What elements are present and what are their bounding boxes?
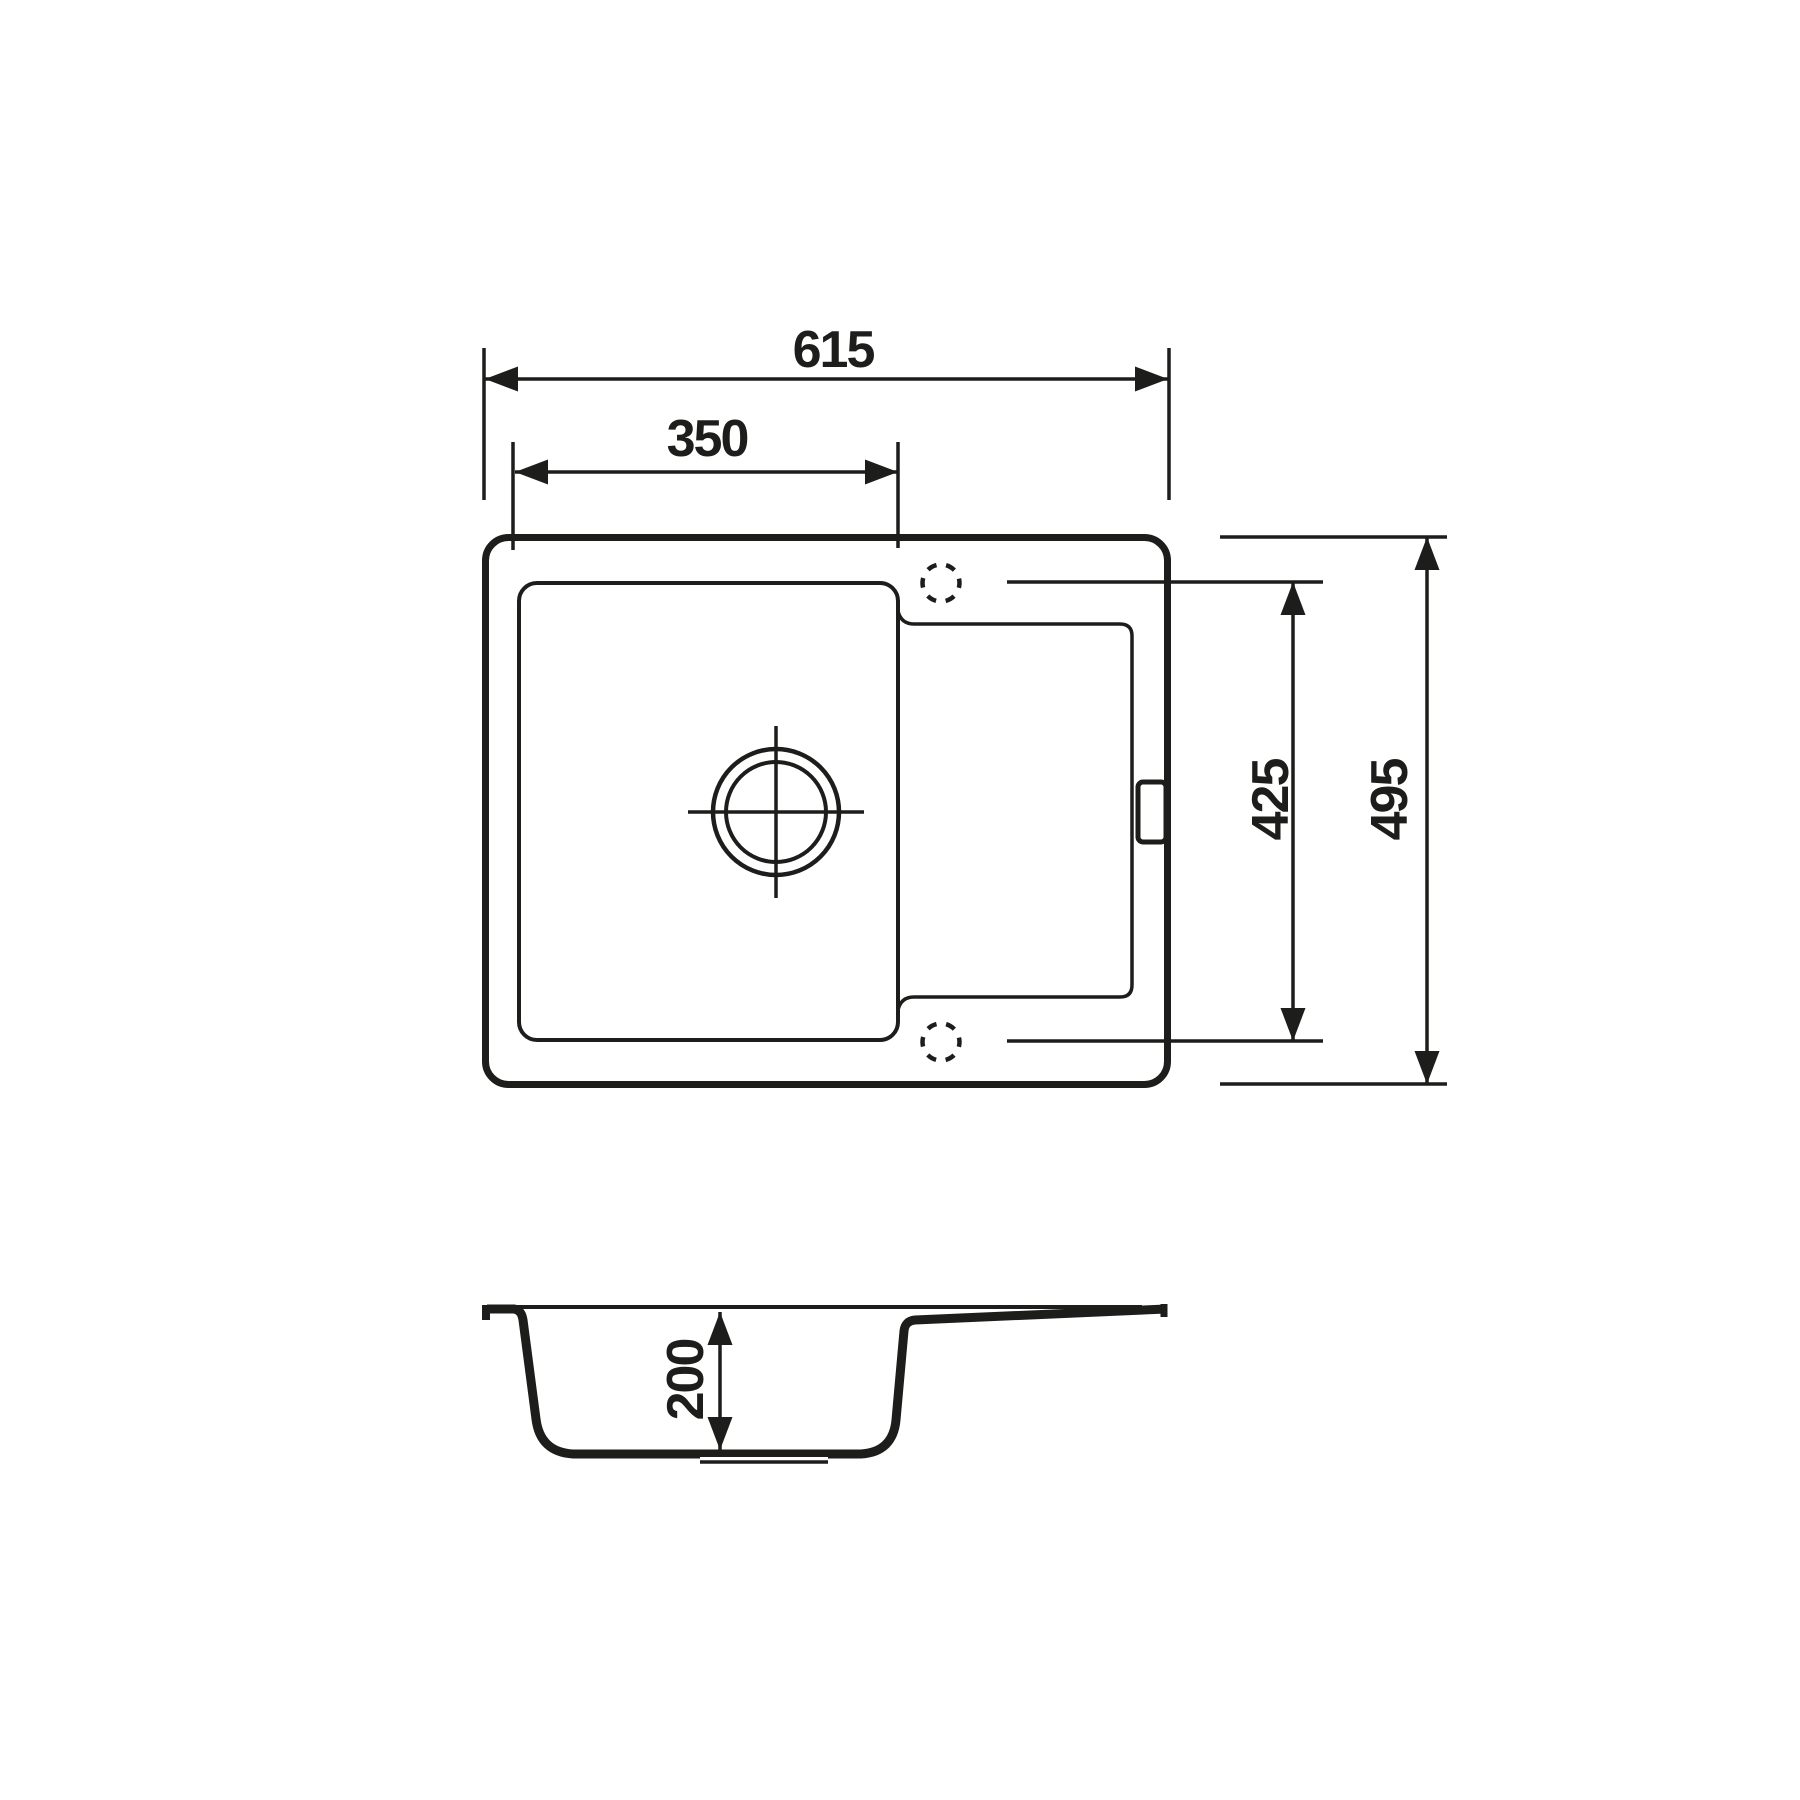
arrowhead-left [515,460,548,485]
arrowhead-top [1415,537,1440,570]
arrowhead-left [485,367,518,392]
dim-label-bowl-width: 350 [667,410,748,468]
arrowhead-top [1281,582,1306,615]
tap-hole-top [923,565,960,602]
tap-hole-bottom [923,1024,960,1061]
dim-label-overall-depth: 495 [1361,759,1419,841]
drawing-canvas: 615 350 425 495 [0,0,1800,1800]
sink-technical-drawing: 615 350 425 495 [0,0,1800,1800]
dim-label-hole-spacing: 425 [1242,759,1300,841]
arrowhead-bottom [708,1417,733,1450]
drainboard-inset-outline [898,611,1132,1010]
dimension-bowl-width: 350 [513,410,898,550]
dim-label-bowl-depth: 200 [657,1340,715,1421]
arrowhead-right [865,460,898,485]
arrowhead-bottom [1415,1051,1440,1084]
arrowhead-right [1135,367,1168,392]
section-view: 200 [486,1304,1166,1462]
dim-label-overall-width: 615 [793,321,875,379]
overflow-handle [1138,782,1166,842]
arrowhead-bottom [1281,1008,1306,1041]
top-view [486,538,1168,1085]
section-profile [487,1309,1166,1454]
